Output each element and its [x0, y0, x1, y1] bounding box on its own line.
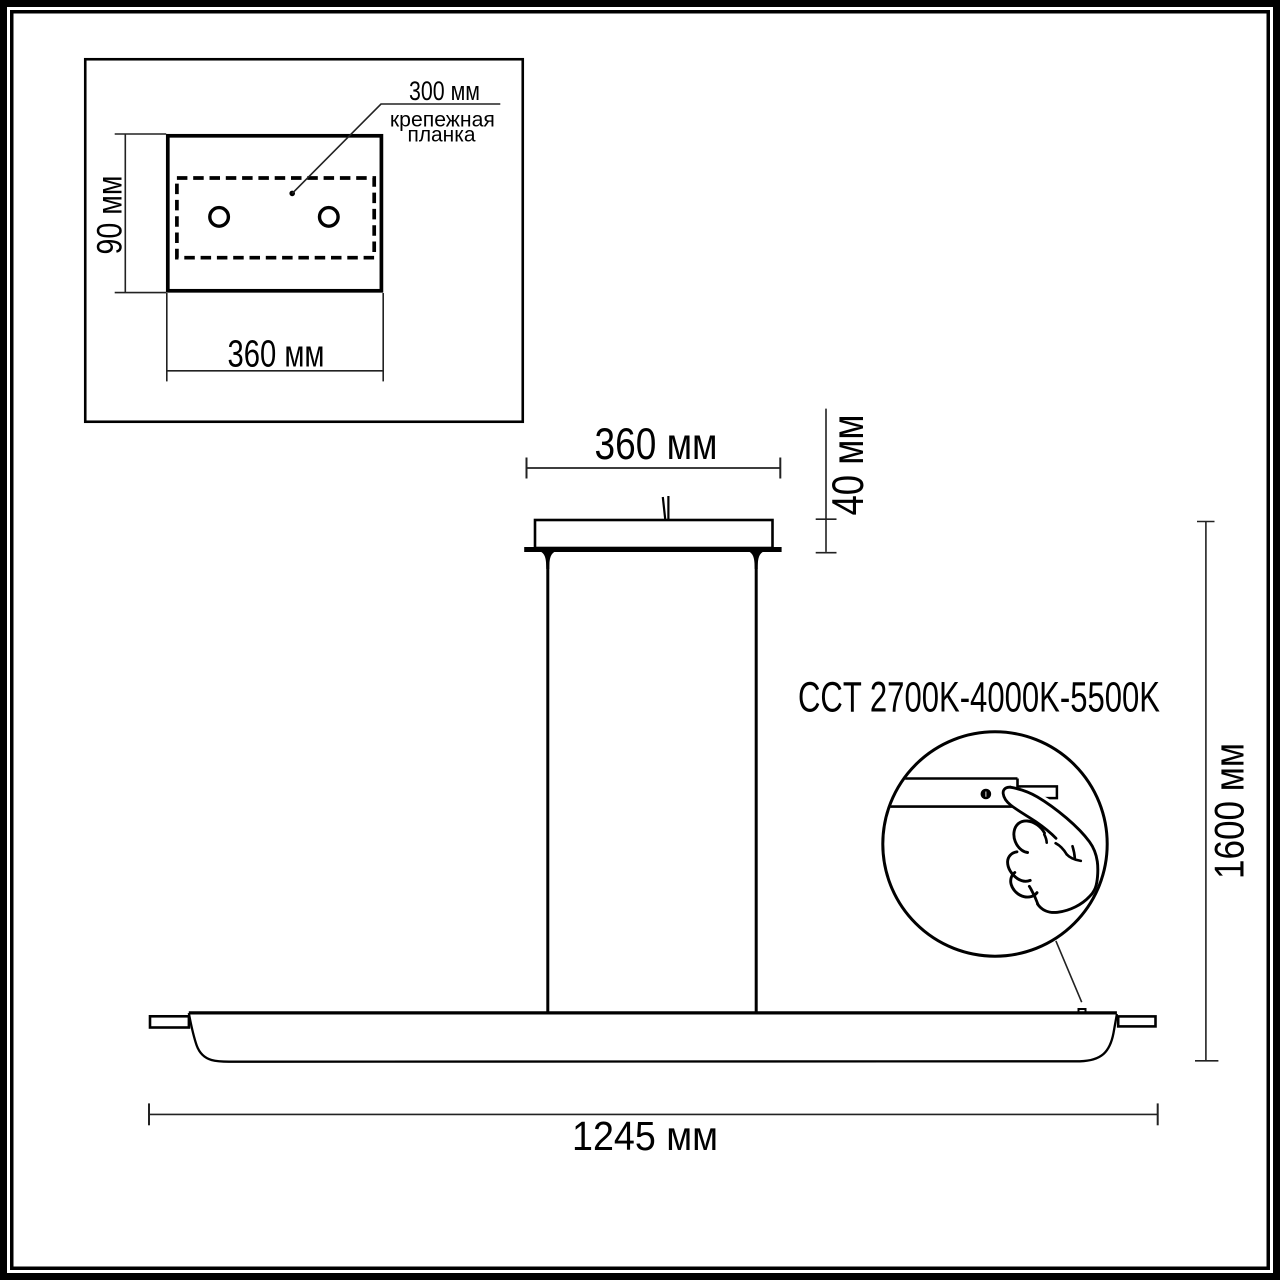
svg-text:360 мм: 360 мм — [595, 420, 718, 469]
svg-text:300 мм: 300 мм — [409, 76, 480, 106]
svg-text:1600 мм: 1600 мм — [1206, 743, 1253, 879]
svg-text:планка: планка — [408, 123, 476, 146]
svg-text:90 мм: 90 мм — [91, 176, 130, 255]
svg-text:1245 мм: 1245 мм — [572, 1113, 718, 1159]
svg-text:360 мм: 360 мм — [228, 332, 325, 374]
svg-text:CCT 2700K-4000K-5500K: CCT 2700K-4000K-5500K — [798, 674, 1160, 722]
svg-text:40 мм: 40 мм — [824, 415, 873, 516]
